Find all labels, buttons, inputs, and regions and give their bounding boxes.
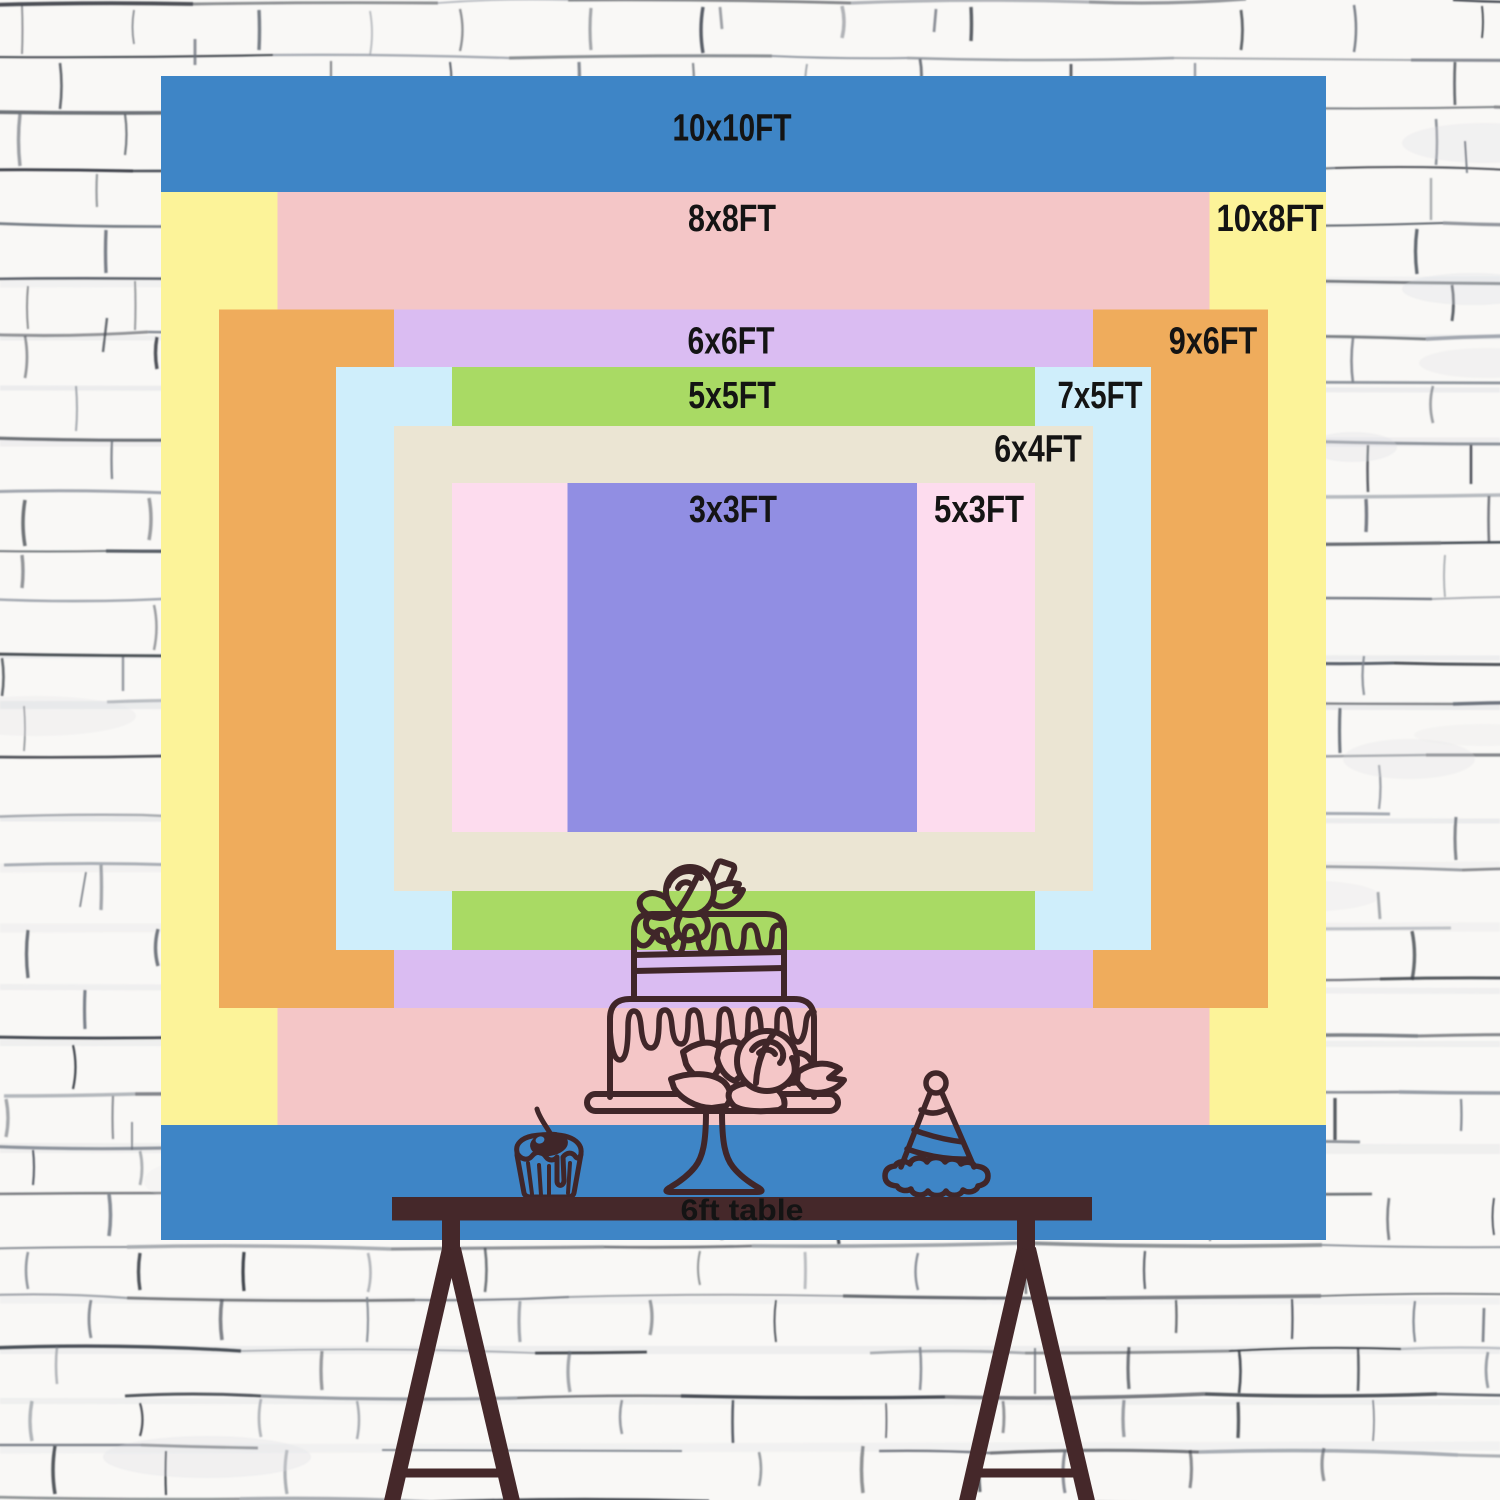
svg-text:5x3FT: 5x3FT — [934, 489, 1024, 531]
svg-text:10x10FT: 10x10FT — [673, 108, 792, 150]
svg-text:6x4FT: 6x4FT — [994, 428, 1082, 470]
svg-text:3x3FT: 3x3FT — [689, 489, 777, 531]
svg-text:9x6FT: 9x6FT — [1169, 321, 1258, 363]
svg-text:6ft table: 6ft table — [681, 1194, 804, 1227]
svg-text:10x8FT: 10x8FT — [1217, 198, 1324, 240]
svg-text:8x8FT: 8x8FT — [688, 198, 776, 240]
svg-text:7x5FT: 7x5FT — [1058, 375, 1143, 417]
svg-text:6x6FT: 6x6FT — [688, 321, 775, 363]
svg-text:5x5FT: 5x5FT — [688, 375, 776, 417]
